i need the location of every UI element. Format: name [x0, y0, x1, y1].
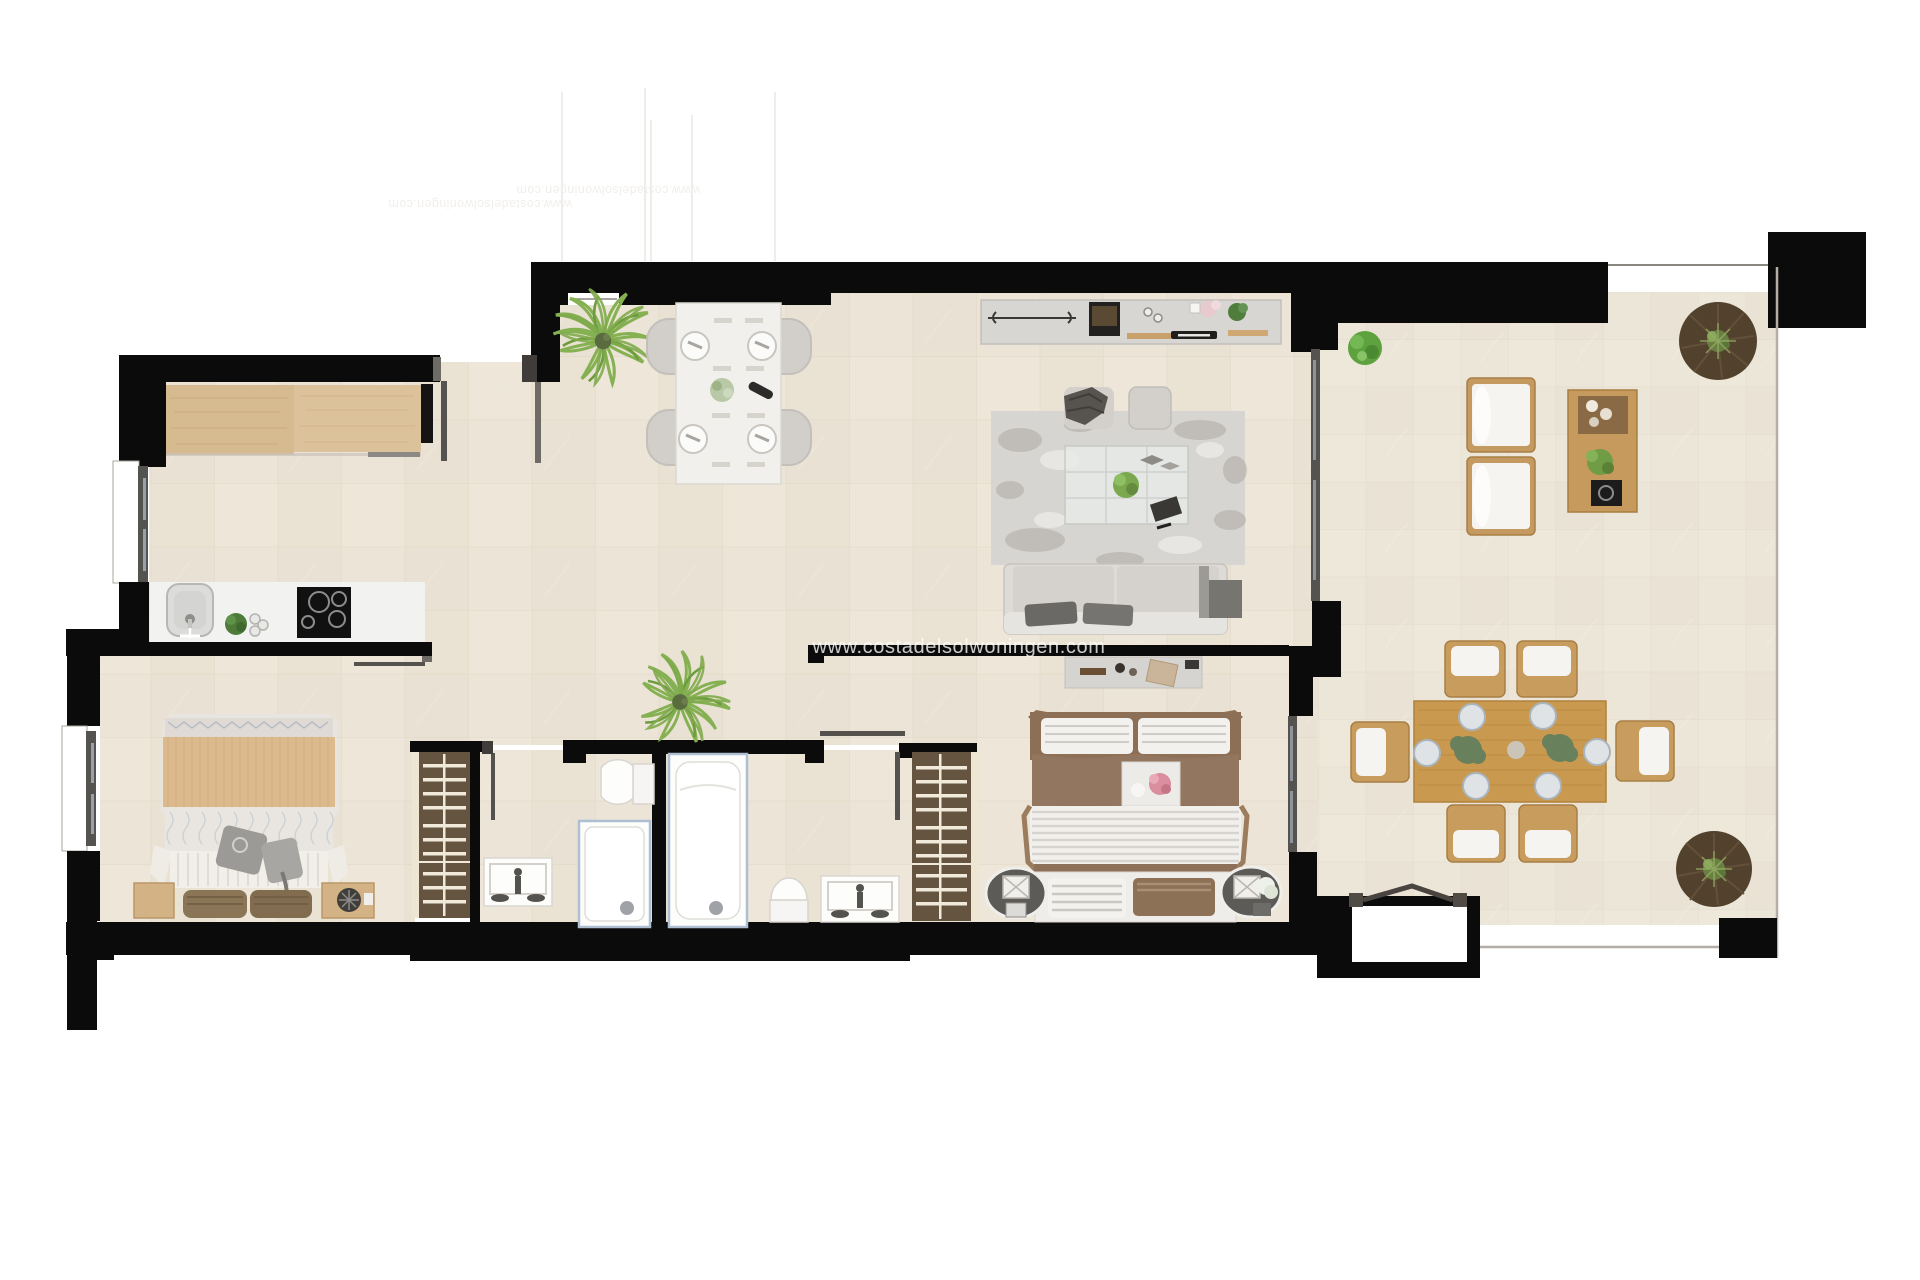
- svg-text:www.costadelsolwoningen.com: www.costadelsolwoningen.com: [811, 636, 1105, 658]
- svg-text:www.costadelsolwoningen.com: www.costadelsolwoningen.com: [388, 197, 573, 211]
- svg-text:www.costadelsolwoningen.com: www.costadelsolwoningen.com: [516, 183, 701, 197]
